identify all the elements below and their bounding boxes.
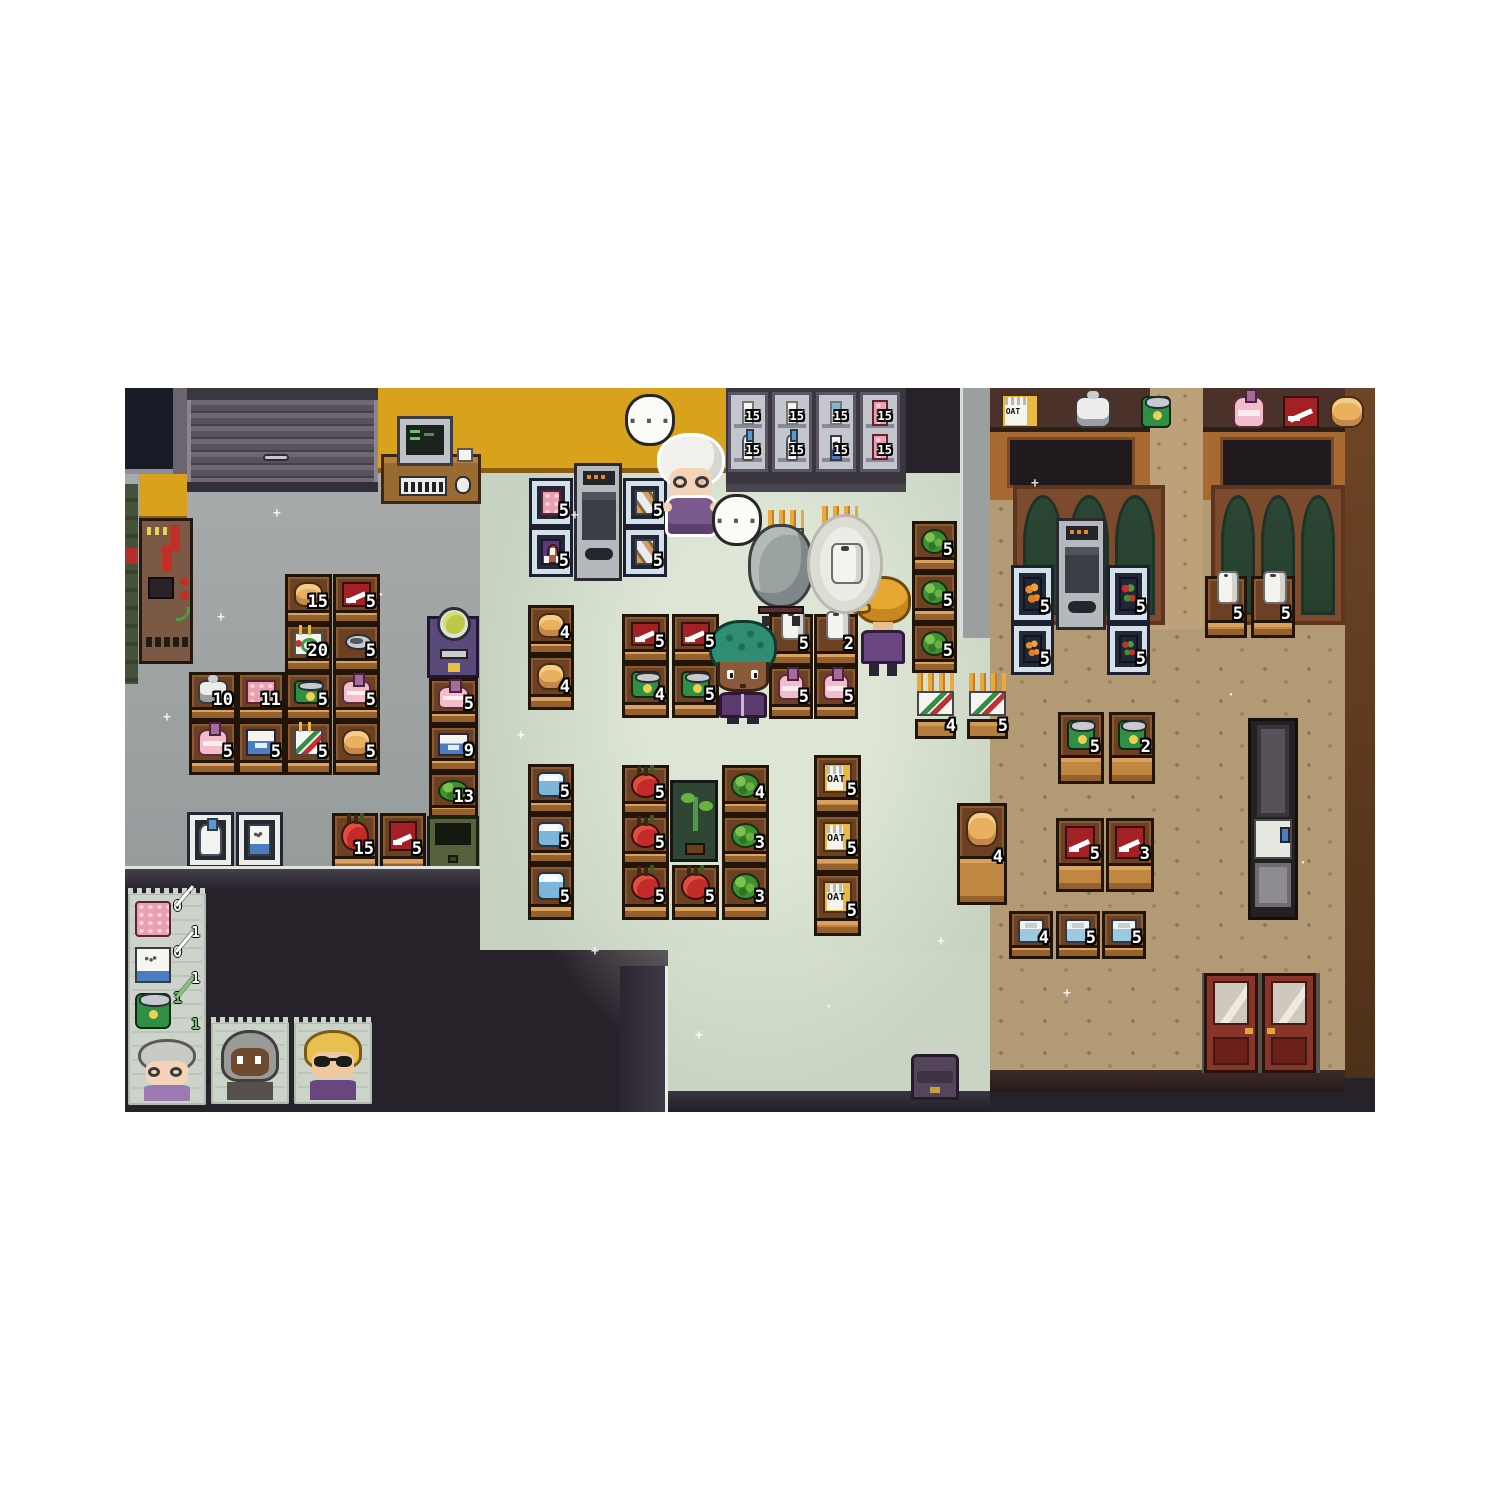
stock-count: 4 (993, 849, 1003, 866)
fridge-bank[interactable]: 15 15 15 15 15 15 15 15 (726, 388, 906, 492)
checkout-counter[interactable] (1248, 718, 1298, 920)
door-window-icon (1213, 981, 1249, 1025)
shelf-crate-green-can[interactable]: 5 (1058, 712, 1104, 784)
old-lady-hands (662, 502, 672, 512)
stock-count: 5 (366, 744, 376, 761)
shelf-crate-apple[interactable]: 5 (622, 865, 669, 920)
meat-icon (135, 901, 171, 937)
green-can-icon (135, 993, 171, 1029)
portrait-eyes (237, 1056, 243, 1064)
cash-register[interactable] (1254, 819, 1292, 859)
stock-count: 9 (464, 743, 474, 760)
crate-base (1112, 755, 1152, 781)
crate-base (1109, 863, 1151, 889)
spaghetti-icon (299, 722, 314, 732)
vending-screen-icon (1066, 526, 1098, 540)
stock-count: 5 (847, 841, 857, 858)
stock-count: 5 (318, 692, 328, 709)
panel-wire-icon (176, 607, 190, 621)
oat-box-icon: OAT (1001, 394, 1039, 428)
electrical-panel[interactable] (139, 518, 193, 664)
shutter-rail (187, 482, 378, 492)
stock-count: 5 (799, 636, 809, 653)
stock-count: 15 (834, 410, 848, 422)
shelf-crate-pink-bottle[interactable]: 5 (189, 721, 237, 775)
stock-count: 15 (308, 594, 328, 611)
vending-window-icon (1065, 547, 1099, 593)
shelf-crate-green-can[interactable]: 2 (1109, 712, 1155, 784)
stock-count: 5 (705, 889, 715, 906)
stock-count: 4 (946, 718, 956, 735)
stock-count: 15 (834, 444, 848, 456)
door-panel-icon (1271, 1037, 1307, 1065)
wall-pillar (960, 388, 990, 638)
stock-count: 5 (559, 553, 569, 570)
table-toilet-paper[interactable]: 5 (1205, 576, 1247, 638)
shelf-crate-shoe[interactable]: 5 (622, 614, 669, 663)
stock-count: 5 (943, 593, 953, 610)
shelf-crate-blue-box[interactable]: 9 (429, 725, 478, 772)
stock-count: 3 (1140, 846, 1150, 863)
floor-sparkle: · (825, 1000, 833, 1015)
cart-wheels-icon (762, 616, 770, 626)
need-count: 1 (191, 1015, 200, 1033)
computer-screen-icon (406, 425, 444, 455)
stock-count: 5 (318, 744, 328, 761)
stock-count: 5 (705, 687, 715, 704)
incense-stand[interactable]: 5 (966, 673, 1009, 739)
yellow-wall-left (139, 474, 187, 520)
player-mouth (740, 684, 746, 688)
floor-sparkle: + (571, 508, 579, 523)
shelf-crate-shoe[interactable]: 5 (380, 813, 426, 873)
shelf-crate-green-can[interactable]: 4 (622, 663, 669, 718)
bin-opening-icon (435, 823, 471, 845)
shelf-crate-cake[interactable]: 20 (285, 624, 332, 672)
floor-sparkle: + (695, 1028, 703, 1043)
speech-bubble: ... (625, 394, 675, 446)
fridge-cell: 15 (734, 429, 762, 462)
display-meat[interactable]: 5 (529, 478, 573, 527)
machine-coin-icon (448, 663, 460, 672)
customer-card-blonde (294, 1022, 372, 1104)
door-handle-icon (1267, 1028, 1275, 1034)
stock-count: 5 (844, 689, 854, 706)
rice-cooker-icon (1075, 396, 1111, 428)
register-screen-icon (1280, 827, 1290, 843)
shelf-crate-bread[interactable]: 5 (333, 721, 380, 775)
stock-count: 5 (1040, 651, 1050, 668)
pink-bottle-icon (1233, 396, 1265, 428)
computer-terminal[interactable] (397, 416, 453, 466)
display-sprinkle-box[interactable] (236, 812, 283, 868)
stock-count: 5 (1132, 930, 1142, 947)
page: { "palette":{"void":"#27212a","backroom_… (0, 0, 1500, 1500)
shelf-crate-cabbage[interactable]: 5 (912, 623, 957, 673)
stock-count: 20 (308, 643, 328, 660)
green-can-icon (1141, 396, 1171, 428)
incense-sticks-icon (917, 673, 953, 693)
stock-count: 5 (653, 553, 663, 570)
toilet-paper-icon (1214, 569, 1238, 604)
counter-end-icon (1255, 863, 1291, 907)
right-edge-wall (1345, 388, 1375, 1078)
table-toilet-paper[interactable]: 5 (1251, 576, 1295, 638)
vending-screen-icon (583, 471, 615, 485)
shelf-crate-bread[interactable]: 4 (957, 803, 1007, 905)
oat-label: OAT (827, 774, 845, 785)
player-pupils (730, 673, 733, 678)
stock-count: 5 (1233, 606, 1243, 623)
game-viewport: 15 5 20 5 5 5 5 5 10 11 5 5 5 9 13 15 5 … (125, 388, 1375, 1112)
wall-shelf-strip-b (1203, 388, 1345, 432)
shelf-crate-cabbage[interactable]: 3 (722, 815, 769, 865)
crate-base (1061, 755, 1101, 781)
display-carrots[interactable]: 5 (1011, 623, 1054, 675)
shelf-crate-cooler[interactable]: 4 (1009, 911, 1053, 959)
fridge-door[interactable]: 15 15 (772, 392, 812, 472)
fridge-cell: 15 (822, 395, 850, 428)
bread-icon (1330, 396, 1364, 428)
panel-buttons-icon (146, 637, 190, 647)
stock-count: 5 (559, 503, 569, 520)
mouse-icon[interactable] (455, 476, 471, 494)
red-box (125, 548, 138, 564)
sprout-icon (693, 797, 698, 831)
shelf-crate-cabbage[interactable]: 5 (912, 572, 957, 623)
keys-icon (404, 482, 444, 492)
shelf-crate-shoe[interactable]: 3 (1106, 818, 1154, 892)
bin-clasp-icon (930, 1087, 940, 1093)
vending-machine[interactable] (1056, 518, 1106, 630)
floor-sparkle: + (217, 610, 225, 625)
stock-count: 5 (412, 841, 422, 858)
shelf-crate-pink-bottle[interactable]: 5 (429, 678, 478, 725)
floor-sparkle: + (591, 944, 599, 959)
display-peppers[interactable]: 5 (1107, 623, 1150, 675)
candles-icon (299, 625, 314, 635)
customer-portrait-old-lady (134, 1039, 200, 1101)
shelf-crate-oat[interactable]: OAT5 (814, 814, 861, 873)
desk-paper-icon (457, 448, 473, 462)
stock-count: 5 (655, 889, 665, 906)
floor-sparkle: + (1031, 476, 1039, 491)
jacket-zipper-icon (741, 694, 744, 716)
stock-count: 5 (464, 696, 474, 713)
portrait-shirt (310, 1080, 356, 1100)
portrait-dress (144, 1085, 190, 1101)
floor-sparkle: + (937, 934, 945, 949)
display-peppers[interactable]: 5 (1107, 565, 1150, 623)
door-window-icon (1271, 981, 1307, 1025)
backroom-dark-doorway (125, 388, 173, 474)
vending-machine[interactable] (574, 463, 622, 581)
fridge-cell: 15 (866, 395, 894, 428)
shopping-list-card: 0 1 0 1 1 1 (128, 893, 206, 1105)
stock-count: 4 (1039, 930, 1049, 947)
green-machine (125, 484, 138, 684)
floor-sparkle: + (163, 710, 171, 725)
door-right[interactable] (1262, 973, 1316, 1073)
stock-count: 5 (847, 903, 857, 920)
shelf-crate-water-jug[interactable]: 5 (528, 864, 574, 920)
bread-icon (966, 811, 998, 847)
shelf-crate-apple[interactable]: 15 (332, 813, 378, 873)
shelf-crate-bread[interactable]: 15 (285, 574, 332, 624)
stock-count: 5 (366, 643, 376, 660)
stock-count: 5 (998, 718, 1008, 735)
shelf-crate-cooler[interactable]: 5 (1056, 911, 1100, 959)
panel-lights-icon (147, 527, 167, 535)
green-orb-icon (443, 612, 465, 634)
shelf-crate-shoe[interactable]: 5 (1056, 818, 1104, 892)
player-character[interactable] (707, 620, 779, 724)
stock-count: 5 (271, 744, 281, 761)
shelf-crate-pink-bottle[interactable]: 5 (814, 666, 858, 719)
stock-count: 5 (560, 889, 570, 906)
panel-knobs-icon (180, 577, 189, 586)
stock-count: 15 (790, 410, 804, 422)
list-count: 0 1 (173, 899, 199, 939)
stock-count: 5 (655, 785, 665, 802)
store-west-wall (620, 966, 668, 1112)
stock-count: 5 (1090, 739, 1100, 756)
fridge-cell: 15 (778, 429, 806, 462)
list-count: 0 1 (173, 945, 199, 985)
shelf-crate-blue-box[interactable]: 5 (237, 721, 285, 775)
display-carrots[interactable]: 5 (1011, 565, 1054, 623)
stock-count: 5 (560, 784, 570, 801)
glasses-icon (170, 1067, 182, 1077)
oat-label: OAT (827, 833, 845, 844)
shelf-crate-oat[interactable]: OAT5 (814, 755, 861, 814)
stock-count: 5 (943, 542, 953, 559)
stock-count: 5 (653, 503, 663, 520)
stock-count: 5 (560, 834, 570, 851)
wall-window-a (1010, 440, 1132, 485)
stock-count: 5 (847, 782, 857, 799)
stock-count: 5 (655, 634, 665, 651)
floor-sparkle: + (273, 506, 281, 521)
fridge-cell: 15 (778, 395, 806, 428)
shelf-crate-cabbage[interactable]: 13 (429, 772, 478, 818)
sunglasses-bridge-icon (328, 1058, 340, 1061)
stock-count: 4 (560, 679, 570, 696)
bin-latch-icon (448, 855, 458, 863)
stock-count: 5 (1136, 651, 1146, 668)
shutter-lintel (187, 388, 378, 400)
oat-label: OAT (1006, 407, 1020, 416)
glasses-icon (673, 476, 687, 488)
floor-sparkle: + (517, 728, 525, 743)
display-tombstone[interactable]: 5 (529, 527, 573, 577)
entrance-doors[interactable] (1202, 973, 1320, 1073)
shelf-crate-bread[interactable]: 4 (528, 655, 574, 710)
panel-lever-icon (170, 525, 180, 551)
shelf-crate-apple[interactable]: 5 (672, 865, 719, 920)
machine-slot-icon (440, 649, 468, 659)
stock-count: 15 (354, 841, 374, 858)
incense-label-icon (969, 691, 1007, 716)
incense-stand[interactable]: 4 (914, 673, 957, 739)
shelf-crate-cabbage[interactable]: 3 (722, 865, 769, 920)
stock-count: 5 (1136, 599, 1146, 616)
keyboard-icon[interactable] (399, 476, 447, 496)
vending-tray-icon (1068, 601, 1096, 613)
customer-shirt (861, 630, 905, 664)
crate-base (1059, 863, 1101, 889)
stock-count: 15 (878, 410, 892, 422)
shelf-crate-water-jug[interactable]: 5 (528, 814, 574, 864)
plant-stand[interactable] (670, 780, 718, 862)
customer-portrait-hooded (217, 1030, 283, 1100)
sprinkle-box-icon (248, 824, 271, 856)
stock-count: 5 (799, 689, 809, 706)
incense-sticks-icon (969, 673, 1005, 693)
fridge-cell: 15 (866, 429, 894, 462)
stock-count: 15 (878, 444, 892, 456)
door-panel-icon (1213, 1037, 1249, 1065)
cart-handle-icon (758, 606, 804, 614)
portrait-shirt (227, 1082, 273, 1100)
shelf-crate-meat[interactable]: 11 (237, 672, 285, 721)
shelf-crate-green-can[interactable]: 5 (285, 672, 332, 721)
shelf-crate-pasta[interactable]: 5 (285, 721, 332, 775)
shelf-crate-cabbage[interactable]: 4 (722, 765, 769, 815)
stock-count: 4 (655, 687, 665, 704)
stock-count: 5 (1090, 846, 1100, 863)
stock-count: 15 (790, 444, 804, 456)
customer-neck (873, 622, 893, 630)
vending-tray-icon (585, 548, 613, 560)
wood-floor-south-wall (990, 1070, 1345, 1092)
shelf-crate-apple[interactable]: 5 (622, 815, 669, 865)
speech-bubble: ... (712, 494, 762, 546)
dairy-box-icon (135, 947, 171, 983)
stock-count: 5 (1281, 606, 1291, 623)
stock-count: 5 (1086, 930, 1096, 947)
customer-portrait-blonde (300, 1030, 366, 1100)
stock-count: 4 (755, 785, 765, 802)
running-shoe-icon (1283, 396, 1319, 428)
bin-lid-icon (917, 1071, 953, 1083)
stock-count: 2 (844, 636, 854, 653)
conveyor-belt-icon (1257, 725, 1289, 817)
shelf-crate-canned-food[interactable]: 5 (333, 624, 380, 672)
shelf-crate-water-jug[interactable]: 5 (528, 764, 574, 814)
stock-count: 5 (943, 643, 953, 660)
floor-sparkle: + (1063, 986, 1071, 1001)
vending-window-icon (582, 492, 616, 540)
floor-sparkle: · (1299, 856, 1307, 871)
toilet-paper-icon (1260, 569, 1286, 604)
list-item-green-can: 1 1 (135, 991, 199, 1033)
table-toilet-paper[interactable]: 2 (814, 614, 858, 666)
fridge-door[interactable]: 15 15 (728, 392, 768, 472)
wall-window-b (1223, 440, 1331, 485)
fridge-cell: 15 (822, 429, 850, 462)
stock-count: 15 (746, 410, 760, 422)
stock-count: 5 (705, 634, 715, 651)
milk-jug-icon (199, 824, 222, 856)
shelf-crate-apple[interactable]: 5 (622, 765, 669, 815)
stock-count: 13 (454, 789, 474, 806)
player-pants (727, 718, 739, 724)
incense-label-icon (917, 691, 955, 716)
panel-screen-icon (148, 577, 174, 599)
shelf-crate-cooler[interactable]: 5 (1102, 911, 1146, 959)
screen-dots-icon (1070, 530, 1074, 534)
shelf-crate-bread[interactable]: 4 (528, 605, 574, 655)
shelf-crate-pink-bottle[interactable]: 5 (333, 672, 380, 721)
shelf-crate-oat[interactable]: OAT5 (814, 873, 861, 936)
sprout-leaves-icon (681, 793, 695, 803)
fridge-cell: 15 (734, 395, 762, 428)
screen-dots-icon (587, 475, 591, 479)
stock-count: 5 (366, 692, 376, 709)
stock-count: 3 (755, 889, 765, 906)
floor-sparkle: · (1227, 688, 1235, 703)
round-tp-display[interactable] (807, 514, 883, 620)
display-milk-jug[interactable] (187, 812, 234, 868)
shutter-handle-icon (263, 454, 289, 461)
screen-text-icon (410, 430, 420, 433)
shelf-crate-rice-cooker[interactable]: 10 (189, 672, 237, 721)
oat-label: OAT (827, 892, 845, 903)
cart-basket-icon (748, 524, 814, 608)
stock-count: 11 (261, 692, 281, 709)
plant-pot-icon (685, 843, 705, 855)
stock-count: 10 (213, 692, 233, 709)
fridge-door[interactable]: 15 15 (816, 392, 856, 472)
stock-count: 5 (223, 744, 233, 761)
door-handle-icon (1245, 1028, 1253, 1034)
shelf-crate-cabbage[interactable]: 5 (912, 521, 957, 572)
old-lady-dress (668, 498, 714, 534)
slash-icon (175, 885, 194, 907)
glasses-icon (695, 476, 709, 488)
customer-pants (869, 664, 879, 676)
shelf-crate-shoe[interactable]: 5 (333, 574, 380, 624)
fridge-door[interactable]: 15 15 (860, 392, 900, 472)
rolling-shutter-door[interactable] (187, 400, 378, 482)
floor-sparkle: · (377, 588, 385, 603)
toilet-paper-icon (827, 540, 863, 584)
stock-count: 4 (560, 625, 570, 642)
glasses-icon (148, 1067, 160, 1077)
arch-window (1301, 495, 1335, 615)
stock-count: 2 (1141, 739, 1151, 756)
stock-count: 5 (366, 594, 376, 611)
stock-count: 5 (655, 835, 665, 852)
fishbowl-machine[interactable] (427, 616, 479, 678)
stock-count: 3 (755, 835, 765, 852)
stock-count: 15 (746, 444, 760, 456)
door-left[interactable] (1204, 973, 1258, 1073)
stock-count: 5 (1040, 599, 1050, 616)
customer-card-hooded (211, 1022, 289, 1104)
list-count-done: 1 1 (173, 991, 199, 1031)
trash-bin[interactable] (911, 1054, 959, 1100)
